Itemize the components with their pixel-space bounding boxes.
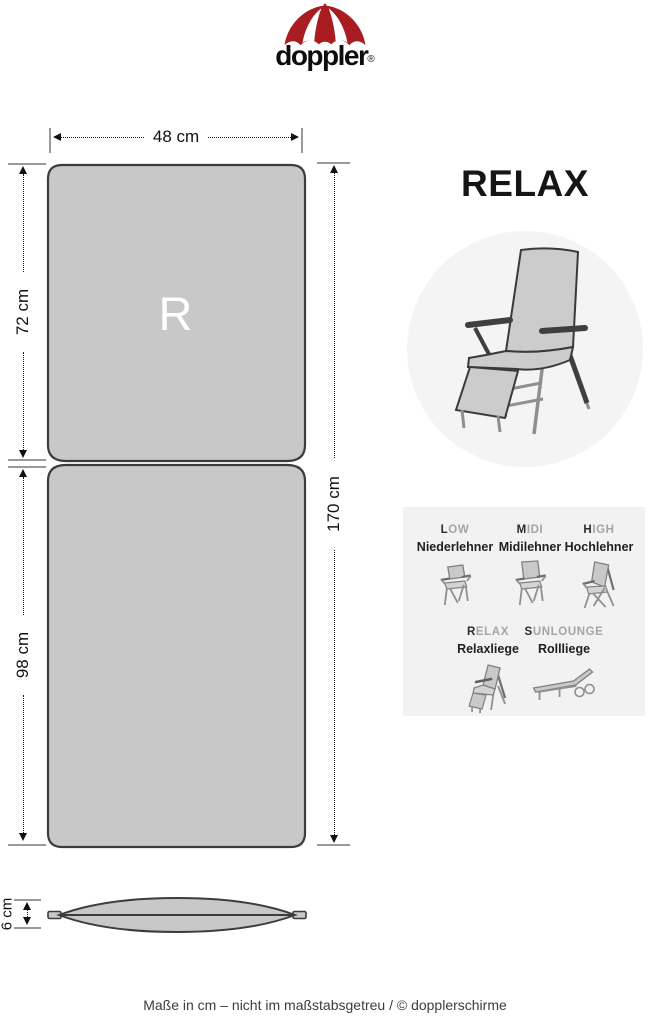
dim-tick — [301, 128, 303, 153]
type-sunlounge-name: Rollliege — [525, 642, 604, 656]
arrow-down-icon — [19, 833, 27, 841]
dim-tick — [317, 162, 350, 164]
arrow-up-icon — [330, 165, 338, 173]
dim-width: 48 cm — [53, 129, 299, 145]
arrow-left-icon — [53, 133, 61, 141]
dim-total-label: 170 cm — [324, 476, 344, 532]
arrow-right-icon — [291, 133, 299, 141]
cushion-marking: R — [48, 290, 303, 337]
product-title: RELAX — [405, 163, 645, 205]
arrow-up-icon — [19, 469, 27, 477]
type-high-name: Hochlehner — [565, 540, 634, 554]
dim-tick — [14, 927, 41, 929]
arrow-down-icon — [330, 835, 338, 843]
dim-seat-length: 98 cm — [14, 469, 32, 841]
dim-seat-label: 98 cm — [13, 632, 33, 678]
type-relax: RELAX Relaxliege — [457, 626, 519, 714]
cushion-seat-section — [48, 465, 305, 847]
product-dimension-sheet: doppler® R 48 cm 72 cm 98 cm — [0, 0, 650, 1020]
dim-thickness — [19, 902, 35, 925]
arrow-down-icon — [23, 917, 31, 925]
footer-note: Maße in cm – nicht im maßstabsgetreu / ©… — [0, 997, 650, 1013]
dim-thickness-label: 6 cm — [0, 898, 16, 931]
brand-word: doppler — [275, 40, 367, 71]
type-midi-name: Midilehner — [499, 540, 562, 554]
type-midi: MIDI Midilehner — [499, 524, 562, 610]
chair-type-legend: LOW Niederlehner MIDI Midilehner — [403, 507, 645, 716]
dim-tick — [49, 128, 51, 153]
type-low-name: Niederlehner — [417, 540, 493, 554]
dim-width-label: 48 cm — [153, 127, 199, 147]
dim-tick — [8, 844, 46, 846]
chair-illustration-circle — [407, 231, 643, 467]
type-low: LOW Niederlehner — [417, 524, 493, 610]
brand-name: doppler® — [275, 42, 375, 70]
arrow-up-icon — [23, 902, 31, 910]
chair-low-icon — [433, 560, 477, 610]
arrow-down-icon — [19, 450, 27, 458]
cushion-top-view — [46, 163, 307, 849]
dim-total-length: 170 cm — [325, 165, 343, 843]
type-sunlounge: SUNLOUNGE Rollliege — [525, 626, 604, 710]
registered-mark: ® — [367, 54, 374, 65]
dim-tick — [8, 459, 46, 461]
chair-high-icon — [576, 560, 622, 612]
dim-back-length: 72 cm — [14, 166, 32, 458]
dim-tick — [317, 844, 350, 846]
dim-tick — [8, 466, 46, 468]
lounger-sunlounge-icon — [530, 662, 598, 710]
brand-logo: doppler® — [0, 2, 650, 70]
chair-relax-icon — [464, 662, 512, 714]
relax-chair-icon — [407, 231, 643, 467]
chair-midi-icon — [508, 560, 552, 610]
type-relax-name: Relaxliege — [457, 642, 519, 656]
dim-tick — [14, 899, 41, 901]
type-high: HIGH Hochlehner — [565, 524, 634, 612]
dim-tick — [8, 163, 46, 165]
arrow-up-icon — [19, 166, 27, 174]
cushion-side-view — [44, 894, 310, 936]
dim-back-label: 72 cm — [13, 289, 33, 335]
